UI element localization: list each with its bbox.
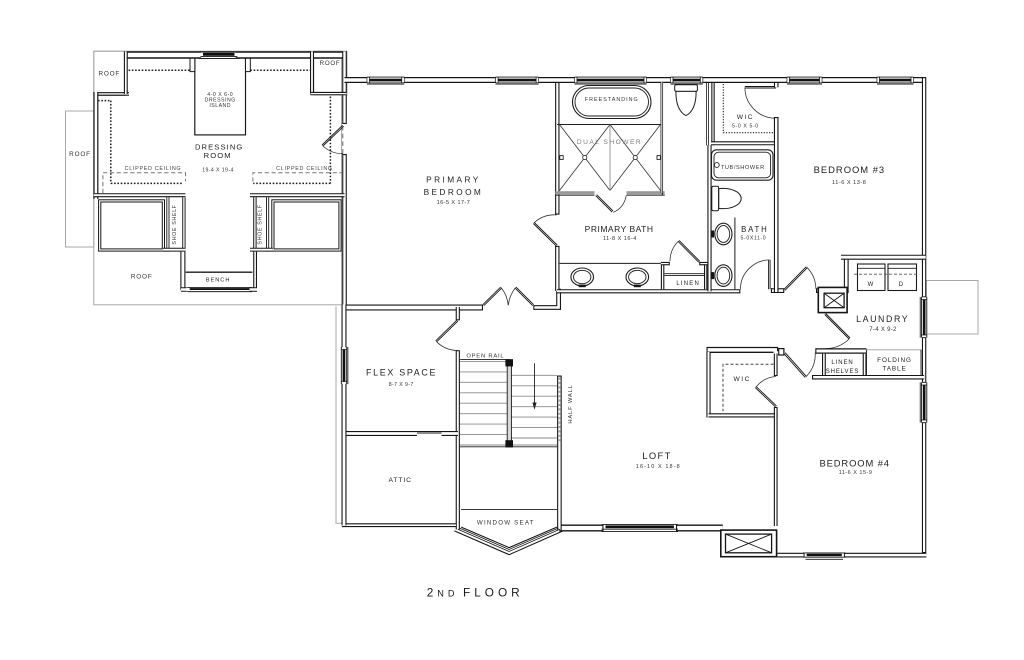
svg-text:11-6 X 15-9: 11-6 X 15-9 — [839, 470, 873, 476]
svg-text:FLEX SPACE: FLEX SPACE — [366, 368, 437, 378]
svg-text:ROOF: ROOF — [98, 71, 120, 78]
svg-text:BATH: BATH — [741, 225, 768, 234]
svg-text:2ND FLOOR: 2ND FLOOR — [427, 586, 524, 600]
svg-text:ROOF: ROOF — [131, 274, 153, 281]
svg-text:TABLE: TABLE — [882, 366, 906, 373]
svg-text:ROOF: ROOF — [69, 151, 91, 158]
svg-text:TUB/SHOWER: TUB/SHOWER — [721, 165, 765, 171]
svg-text:W: W — [868, 282, 874, 288]
svg-text:7-4 X 9-2: 7-4 X 9-2 — [869, 327, 897, 333]
svg-text:PRIMARY: PRIMARY — [426, 175, 480, 185]
svg-text:8-7 X 9-7: 8-7 X 9-7 — [389, 382, 414, 388]
svg-text:5-0 X 5-0: 5-0 X 5-0 — [732, 124, 759, 130]
svg-text:WIC: WIC — [734, 376, 751, 383]
svg-text:BENCH: BENCH — [206, 277, 231, 283]
svg-text:WINDOW SEAT: WINDOW SEAT — [477, 520, 535, 527]
svg-text:DRESSING: DRESSING — [195, 142, 243, 151]
svg-text:16-10 X 18-8: 16-10 X 18-8 — [636, 464, 681, 470]
svg-text:FREESTANDING: FREESTANDING — [585, 97, 639, 103]
svg-text:16-5 X 17-7: 16-5 X 17-7 — [437, 200, 471, 206]
svg-text:5-0X11-0: 5-0X11-0 — [741, 236, 767, 242]
svg-text:ROOF: ROOF — [320, 60, 341, 67]
svg-text:LAUNDRY: LAUNDRY — [856, 314, 909, 324]
svg-text:BEDROOM #3: BEDROOM #3 — [814, 164, 885, 175]
svg-text:PRIMARY BATH: PRIMARY BATH — [585, 224, 654, 234]
svg-text:CLIPPED CEILING: CLIPPED CEILING — [125, 166, 182, 172]
svg-text:BEDROOM #4: BEDROOM #4 — [819, 458, 889, 469]
svg-text:DUAL SHOWER: DUAL SHOWER — [577, 139, 642, 146]
svg-text:19-4 X 19-4: 19-4 X 19-4 — [202, 168, 234, 174]
svg-text:BEDROOM: BEDROOM — [424, 187, 484, 197]
svg-text:D: D — [899, 282, 904, 288]
svg-text:11-8 X 16-4: 11-8 X 16-4 — [603, 236, 637, 242]
svg-text:ATTIC: ATTIC — [389, 477, 412, 484]
svg-text:LINEN: LINEN — [831, 360, 853, 366]
svg-text:ROOM: ROOM — [204, 151, 232, 160]
svg-text:ISLAND: ISLAND — [209, 103, 231, 109]
svg-text:SHOE SHELF: SHOE SHELF — [172, 204, 178, 244]
svg-text:11-6 X 13-8: 11-6 X 13-8 — [832, 180, 866, 186]
svg-text:FOLDING: FOLDING — [877, 357, 912, 364]
svg-text:LINEN: LINEN — [676, 281, 700, 287]
svg-text:SHOE SHELF: SHOE SHELF — [257, 204, 263, 244]
svg-text:SHELVES: SHELVES — [826, 369, 860, 375]
svg-text:LOFT: LOFT — [642, 450, 672, 461]
svg-text:OPEN RAIL: OPEN RAIL — [466, 353, 504, 359]
svg-text:WIC: WIC — [737, 114, 754, 121]
svg-text:HALF WALL: HALF WALL — [568, 384, 574, 423]
svg-text:CLIPPED CEILING: CLIPPED CEILING — [276, 166, 333, 172]
